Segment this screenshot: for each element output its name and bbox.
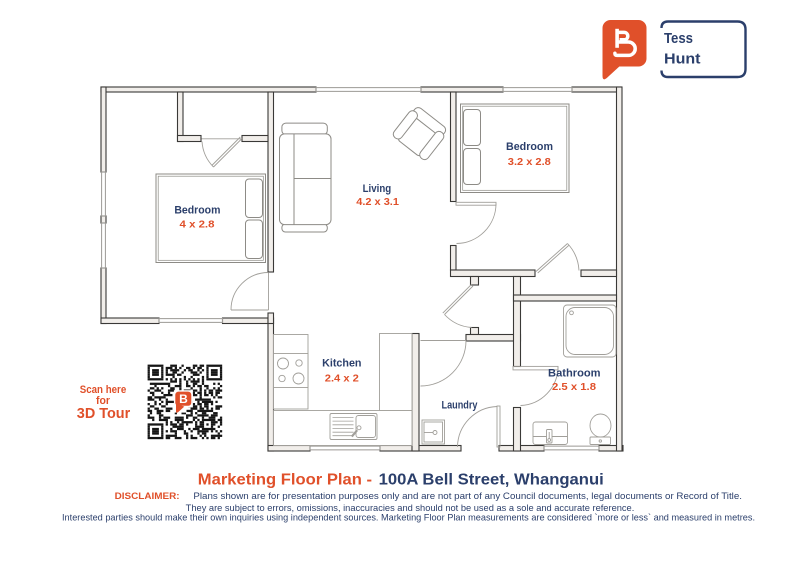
- svg-text:Scan here: Scan here: [80, 384, 127, 396]
- svg-text:4.2 x 3.1: 4.2 x 3.1: [356, 197, 399, 208]
- svg-text:2.4 x 2: 2.4 x 2: [325, 373, 359, 384]
- svg-text:DISCLAIMER:: DISCLAIMER:: [115, 491, 180, 501]
- svg-text:They are subject to errors, om: They are subject to errors, omissions, i…: [186, 503, 635, 513]
- svg-text:Bedroom: Bedroom: [506, 141, 553, 153]
- svg-text:Laundry: Laundry: [442, 400, 479, 412]
- svg-text:B: B: [179, 392, 188, 406]
- svg-text:Tess: Tess: [664, 31, 693, 47]
- svg-text:2.5 x 1.8: 2.5 x 1.8: [552, 382, 596, 393]
- svg-text:Bedroom: Bedroom: [174, 204, 220, 216]
- svg-text:3D Tour: 3D Tour: [77, 406, 131, 422]
- svg-text:Hunt: Hunt: [664, 51, 701, 67]
- svg-text:Living: Living: [363, 183, 392, 195]
- svg-text:Plans shown are for presentati: Plans shown are for presentation purpose…: [193, 491, 742, 501]
- svg-text:Interested parties should make: Interested parties should make their own…: [62, 512, 755, 522]
- svg-text:Kitchen: Kitchen: [322, 358, 361, 370]
- svg-text:4 x 2.8: 4 x 2.8: [180, 220, 215, 231]
- svg-text:Marketing Floor Plan -: Marketing Floor Plan -: [198, 472, 372, 489]
- svg-text:Bathroom: Bathroom: [548, 368, 601, 380]
- svg-text:100A Bell Street, Whanganui: 100A Bell Street, Whanganui: [379, 472, 604, 489]
- svg-text:3.2 x 2.8: 3.2 x 2.8: [508, 157, 551, 168]
